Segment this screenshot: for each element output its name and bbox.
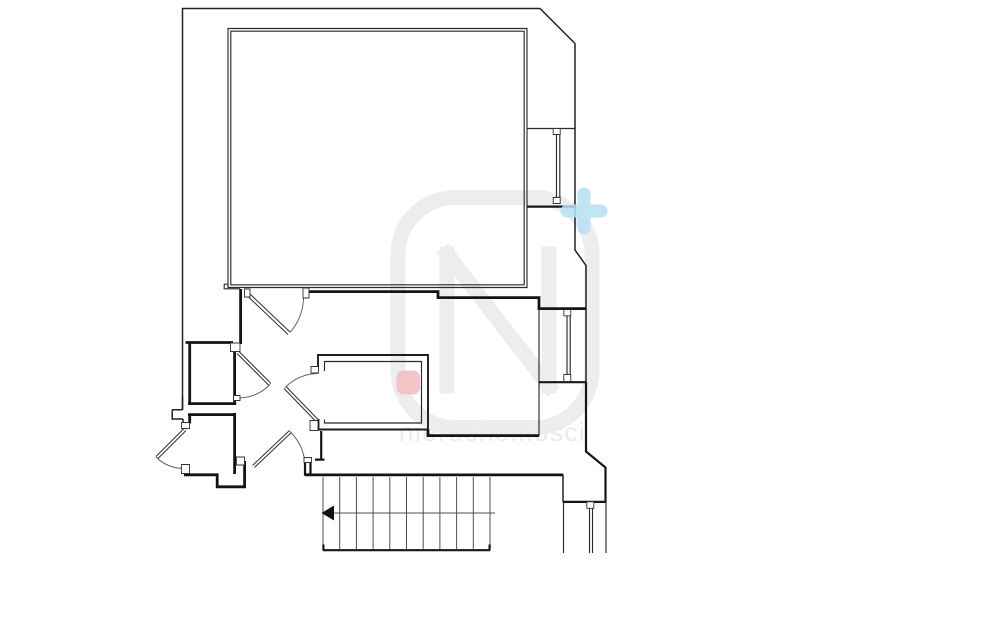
room-large-outer-wall <box>228 29 527 288</box>
floor-plan: nieruchomości <box>0 0 983 631</box>
glazing-tick <box>587 502 594 509</box>
glazing-tick <box>553 198 560 204</box>
room-upper-left-walls <box>186 343 237 404</box>
stairs <box>322 477 496 550</box>
doors <box>156 288 319 474</box>
watermark-logo-n <box>447 254 549 386</box>
door-jamb <box>231 343 241 352</box>
room-large-inner-wall <box>231 31 524 285</box>
glazing-tick <box>553 129 560 135</box>
glazing-tick <box>564 375 571 382</box>
plus-marker-icon[interactable] <box>567 194 601 228</box>
window-bay-bottom-glazing <box>590 508 593 553</box>
corridor-left-stub <box>315 431 325 460</box>
door-jamb <box>182 465 190 474</box>
door-jamb <box>303 288 309 298</box>
pink-marker[interactable] <box>397 371 421 395</box>
wall-notch <box>172 396 183 423</box>
door-leaf <box>284 387 318 422</box>
window-bay-bottom-sides <box>564 502 607 553</box>
door-leaf <box>253 431 292 468</box>
door-jamb <box>237 457 245 465</box>
window-bay-top-glazing <box>557 131 560 202</box>
door-swing-arc <box>240 385 271 399</box>
door-jamb <box>245 289 251 297</box>
door-leaf <box>156 429 186 459</box>
door-leaf <box>248 294 290 335</box>
door-swing-arc <box>156 457 184 469</box>
door-swing-arc <box>290 295 304 333</box>
room-large-top <box>224 29 527 289</box>
door-jamb <box>182 423 190 429</box>
room-lower-left-walls <box>184 413 245 487</box>
window-bay-middle-glazing <box>567 312 570 378</box>
door-swing-arc <box>285 374 318 388</box>
door-jamb <box>304 458 312 463</box>
floor-plan-page: nieruchomości <box>0 0 983 631</box>
door-jamb <box>234 396 241 401</box>
door-jamb <box>311 367 319 374</box>
door-jamb <box>310 421 318 431</box>
door-swing-arc <box>290 432 305 460</box>
door-leaf <box>237 352 271 386</box>
